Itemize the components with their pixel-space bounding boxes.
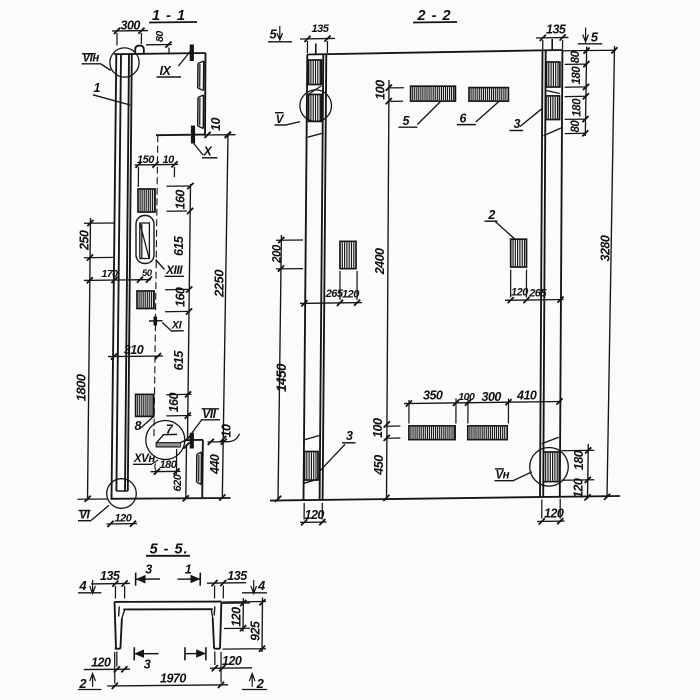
svg-text:135: 135 bbox=[546, 23, 567, 37]
svg-text:VI: VI bbox=[79, 510, 90, 522]
svg-text:265: 265 bbox=[528, 288, 547, 300]
svg-text:620: 620 bbox=[172, 473, 184, 491]
svg-text:350: 350 bbox=[423, 388, 443, 402]
svg-text:925: 925 bbox=[249, 620, 263, 641]
svg-text:3: 3 bbox=[346, 429, 353, 443]
svg-text:120: 120 bbox=[230, 607, 244, 627]
svg-text:100: 100 bbox=[373, 80, 387, 100]
svg-text:180: 180 bbox=[571, 98, 583, 117]
svg-text:XI: XI bbox=[171, 320, 183, 332]
svg-text:XVн: XVн bbox=[133, 453, 155, 465]
svg-text:80: 80 bbox=[570, 50, 582, 63]
svg-text:100: 100 bbox=[458, 391, 475, 403]
svg-text:310: 310 bbox=[124, 343, 144, 357]
svg-text:3: 3 bbox=[514, 117, 521, 131]
svg-text:3280: 3280 bbox=[598, 235, 612, 261]
svg-text:120: 120 bbox=[91, 655, 111, 669]
svg-text:4: 4 bbox=[78, 578, 87, 593]
svg-text:1800: 1800 bbox=[74, 373, 89, 401]
svg-text:135: 135 bbox=[312, 23, 330, 35]
svg-text:440: 440 bbox=[208, 454, 222, 475]
svg-text:10: 10 bbox=[209, 118, 223, 131]
svg-text:180: 180 bbox=[160, 459, 178, 471]
svg-text:100: 100 bbox=[371, 418, 385, 438]
svg-text:135: 135 bbox=[227, 569, 248, 583]
svg-text:1450: 1450 bbox=[274, 363, 289, 392]
svg-text:160: 160 bbox=[174, 190, 188, 210]
svg-text:615: 615 bbox=[172, 350, 186, 371]
svg-text:450: 450 bbox=[372, 455, 386, 476]
svg-text:80: 80 bbox=[154, 31, 166, 42]
svg-text:4: 4 bbox=[257, 578, 266, 593]
svg-text:180: 180 bbox=[571, 66, 583, 85]
svg-text:160: 160 bbox=[167, 392, 181, 412]
svg-text:1970: 1970 bbox=[160, 671, 186, 685]
svg-text:180: 180 bbox=[572, 450, 586, 470]
svg-text:Vн: Vн bbox=[496, 470, 510, 482]
svg-text:200: 200 bbox=[272, 244, 284, 264]
svg-text:120: 120 bbox=[544, 507, 564, 521]
svg-text:2400: 2400 bbox=[373, 248, 387, 275]
svg-text:1: 1 bbox=[94, 81, 101, 95]
svg-text:250: 250 bbox=[78, 230, 92, 251]
svg-text:615: 615 bbox=[172, 235, 186, 256]
svg-text:XIII: XIII bbox=[165, 263, 183, 277]
svg-text:8: 8 bbox=[135, 419, 142, 433]
svg-text:IX: IX bbox=[160, 64, 172, 78]
svg-text:X: X bbox=[203, 145, 213, 159]
svg-text:10: 10 bbox=[219, 424, 233, 437]
svg-text:2250: 2250 bbox=[212, 269, 227, 298]
svg-text:120: 120 bbox=[115, 513, 133, 525]
svg-text:1: 1 bbox=[185, 563, 192, 577]
svg-text:3: 3 bbox=[144, 658, 151, 672]
svg-text:2: 2 bbox=[487, 208, 495, 222]
svg-text:120: 120 bbox=[572, 478, 586, 498]
svg-text:3: 3 bbox=[145, 563, 152, 577]
svg-text:80: 80 bbox=[570, 120, 582, 133]
svg-text:410: 410 bbox=[516, 388, 537, 402]
